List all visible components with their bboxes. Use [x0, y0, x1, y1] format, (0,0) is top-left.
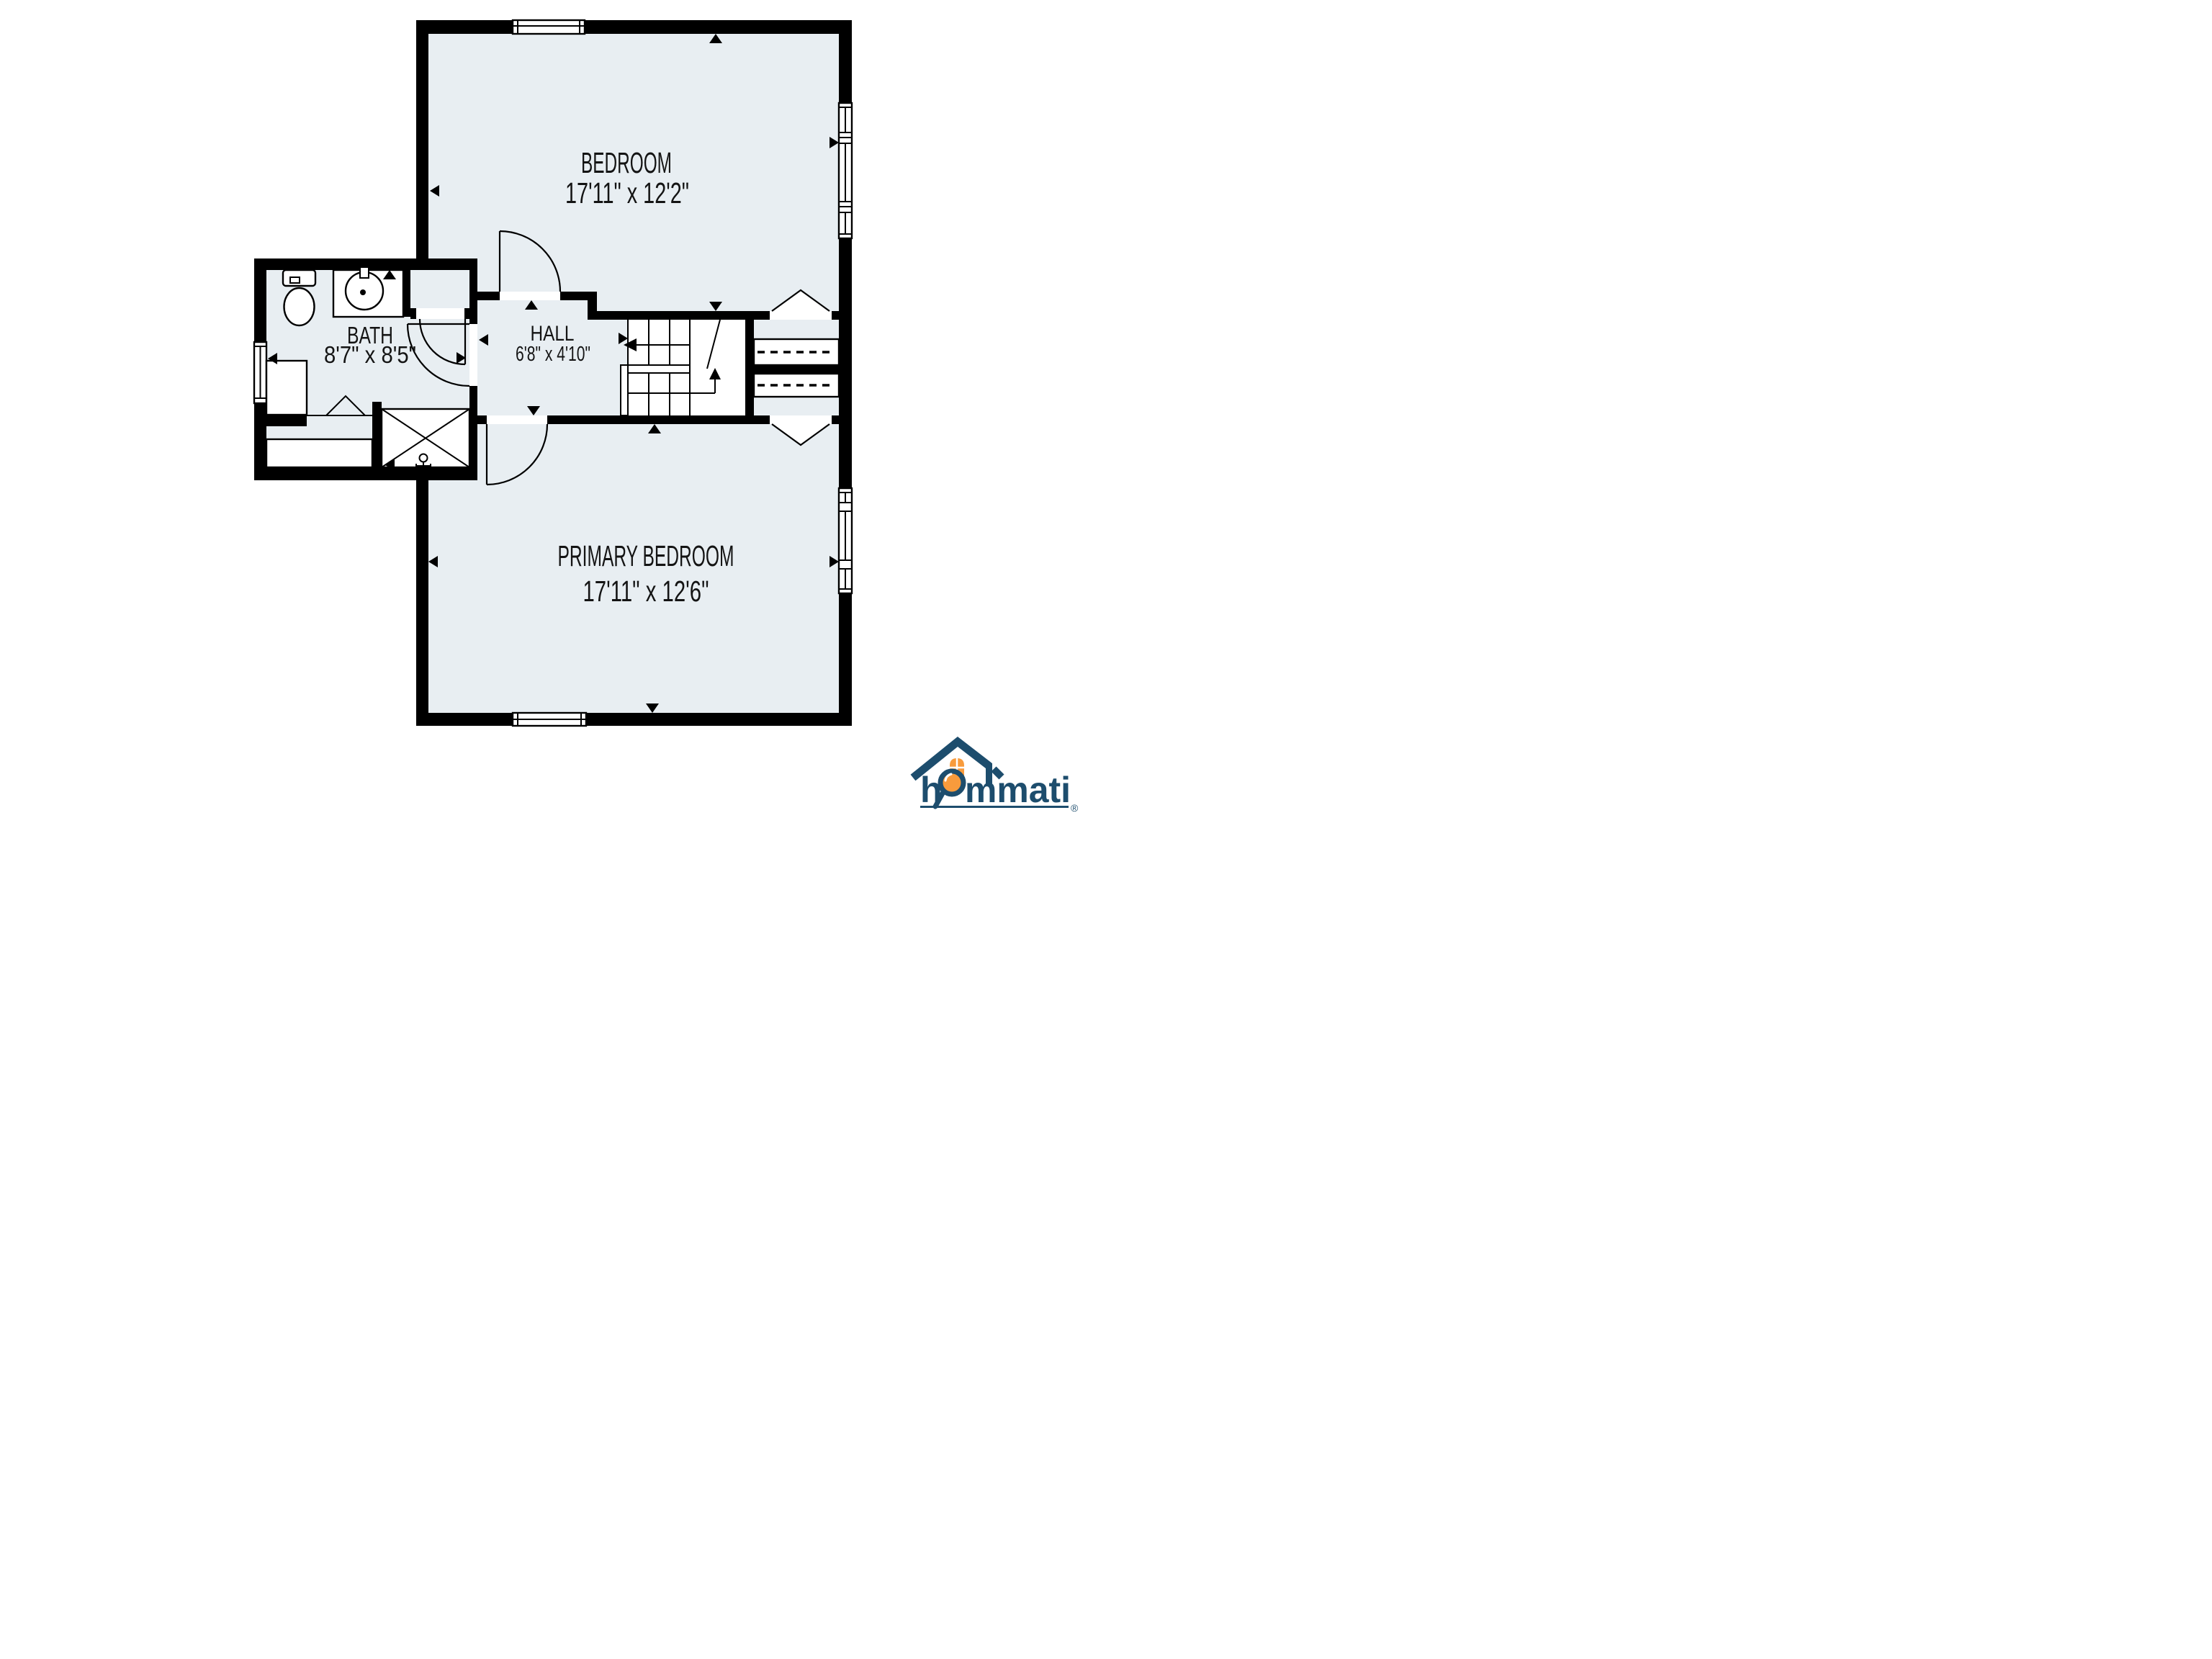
primary-bedroom-dimensions-label: 17'11" x 12'6" — [583, 575, 709, 608]
bedroom-door-opening — [500, 292, 560, 300]
wall — [588, 292, 597, 320]
primary-bedroom-name-label: PRIMARY BEDROOM — [558, 539, 734, 572]
closet-bottom-opening — [770, 415, 832, 424]
wall — [754, 365, 839, 374]
wall — [464, 308, 469, 319]
logo-magnifier-icon — [935, 771, 963, 806]
sink-vanity-fixture — [333, 267, 403, 317]
primary-bedroom-door-opening — [487, 415, 547, 424]
wall — [416, 713, 852, 726]
wall — [372, 402, 382, 467]
floor-plan-canvas: BEDROOM 17'11" x 12'2" BATH 8'7" x 8'5" … — [0, 0, 1106, 829]
hall-dimensions-label: 6'8" x 4'10" — [516, 343, 590, 366]
logo-brand-text: mmati — [965, 770, 1071, 810]
bath-closet-opening — [416, 308, 464, 319]
window-primary-right-icon — [839, 488, 852, 593]
wall — [254, 467, 477, 480]
closet-top-opening — [770, 311, 832, 320]
wall — [416, 20, 852, 34]
wall — [416, 467, 428, 726]
floor-plan-page: BEDROOM 17'11" x 12'2" BATH 8'7" x 8'5" … — [0, 0, 1106, 829]
wall — [266, 415, 307, 426]
bedroom-name-label: BEDROOM — [581, 146, 672, 179]
bath-dimensions-label: 8'7" x 8'5" — [324, 341, 416, 368]
wall — [416, 20, 428, 270]
stair-stringer — [621, 365, 628, 415]
laundry-counter-fixture — [266, 439, 372, 467]
wall — [410, 308, 416, 319]
staircase — [621, 320, 745, 415]
window-bedroom-top-icon — [513, 20, 585, 34]
stair-stringer — [621, 365, 690, 373]
window-bath-left-icon — [254, 342, 266, 403]
cabinet-fixture — [266, 361, 307, 415]
wall — [403, 270, 410, 317]
shower-fixture — [382, 409, 469, 468]
hommati-logo: h mmati ® — [913, 742, 1079, 814]
bedroom-dimensions-label: 17'11" x 12'2" — [565, 176, 689, 210]
toilet-fixture — [283, 270, 315, 325]
logo-underline — [920, 806, 1069, 808]
bath-door-opening — [469, 324, 477, 386]
logo-registered-mark: ® — [1071, 802, 1079, 814]
wall — [745, 311, 754, 424]
wall — [469, 415, 477, 480]
window-bedroom-right-icon — [839, 103, 852, 238]
window-primary-bottom-icon — [513, 713, 586, 726]
